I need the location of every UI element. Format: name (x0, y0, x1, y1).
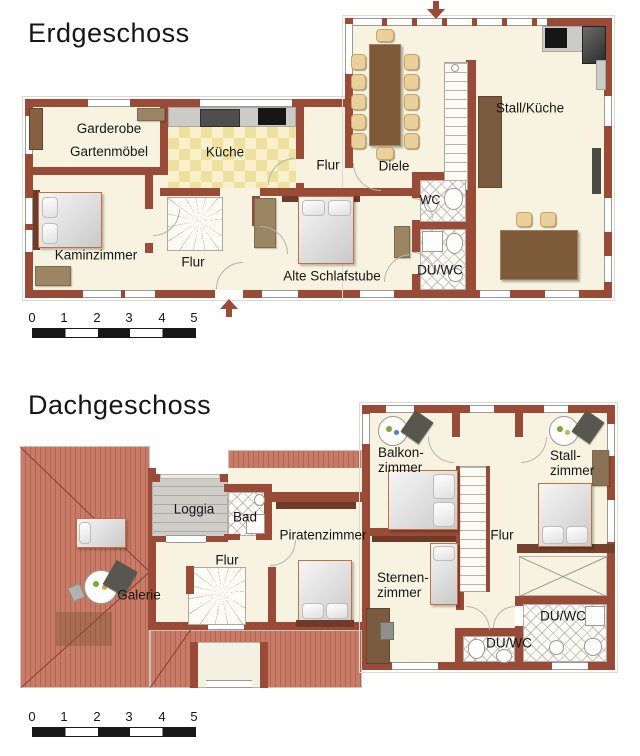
glass-post (502, 18, 507, 26)
shower (422, 231, 443, 252)
scale-tick: 0 (28, 709, 35, 724)
table-decor (394, 430, 399, 435)
table (500, 230, 578, 280)
wall-segment (145, 175, 153, 209)
wall-segment (515, 405, 523, 437)
room-label-garderobe: Garderobe Gartenmöbel (70, 117, 148, 163)
window (607, 500, 615, 542)
window (262, 290, 298, 298)
window (604, 256, 612, 282)
chair (404, 54, 419, 70)
room-label-sternenzimmer: Sternen- zimmer (377, 570, 429, 600)
table-decor (93, 581, 99, 587)
window (480, 290, 510, 298)
room-label-balkonzimmer: Balkon- zimmer (378, 445, 424, 475)
loggia-railing (160, 474, 220, 479)
wall-segment (224, 534, 240, 540)
pillow (302, 200, 325, 216)
kitchen-sink (200, 109, 240, 127)
room-label-line: zimmer (378, 460, 424, 475)
window (360, 290, 394, 298)
window (604, 198, 612, 232)
scale-bar (32, 727, 196, 737)
room-label-wc: WC (420, 193, 441, 207)
room-label-du-wc-gross: DU/WC (540, 609, 586, 624)
appliance (582, 26, 606, 64)
room-label-flur-sued: Flur (181, 255, 204, 270)
staircase-spiral (188, 567, 246, 625)
chair (404, 114, 419, 130)
kitchen-counter (596, 60, 606, 90)
window (88, 99, 130, 107)
floor-title-erdgeschoss: Erdgeschoss (28, 18, 190, 49)
wall-segment (268, 567, 276, 622)
scale-bar (32, 328, 196, 338)
bed-alte-schlafstube (298, 196, 354, 264)
chair (351, 133, 366, 149)
wall-segment (260, 642, 268, 688)
pillow (542, 526, 564, 544)
wall-segment (296, 107, 304, 159)
room-label-flur-ost: Flur (490, 528, 513, 543)
bidet (549, 640, 564, 655)
scale-tick: 0 (28, 310, 35, 325)
chair (351, 74, 366, 90)
room-label-line: Balkon- (378, 445, 424, 460)
chair (380, 622, 394, 640)
pillow (42, 197, 58, 218)
wall-segment (190, 642, 198, 688)
toilet (468, 639, 485, 659)
pillow (433, 546, 455, 561)
bed-sternenzimmer (430, 543, 458, 605)
wall-segment (272, 492, 362, 502)
room-label-line: zimmer (550, 463, 594, 478)
toilet (444, 188, 463, 210)
toilet (446, 233, 463, 254)
scale-tick: 1 (60, 310, 67, 325)
scale-tick: 2 (93, 709, 100, 724)
window (206, 680, 252, 688)
chair (351, 94, 366, 110)
window (604, 96, 612, 126)
shelf (592, 148, 601, 194)
sink (254, 494, 265, 506)
window (545, 290, 579, 298)
chair (540, 212, 556, 227)
bed-balkonzimmer (388, 470, 458, 530)
glass-post (382, 18, 387, 26)
window (125, 290, 155, 298)
chair (516, 212, 532, 227)
glass-post (442, 18, 447, 26)
table-decor (557, 426, 563, 432)
bed-footwall (296, 620, 354, 627)
chair (351, 114, 366, 130)
room-label-bad: Bad (233, 510, 257, 525)
entrance-opening (215, 290, 243, 298)
bed-galerie (76, 518, 126, 548)
wall-segment (186, 566, 194, 594)
wall-segment (33, 167, 168, 175)
under-roof-furniture (56, 612, 112, 646)
room-label-line: Stall- (550, 448, 594, 463)
window (200, 99, 292, 107)
window (386, 405, 414, 413)
toilet (584, 638, 602, 656)
cooktop (258, 108, 286, 125)
pillow (79, 522, 91, 544)
pillow (433, 502, 455, 527)
bed-stallzimmer (538, 483, 592, 547)
window (362, 414, 370, 444)
scale-tick: 4 (158, 709, 165, 724)
wall-segment (455, 628, 463, 664)
chair (351, 54, 366, 70)
pillow (328, 200, 351, 216)
chair (404, 74, 419, 90)
scale-tick: 5 (190, 310, 197, 325)
window (25, 230, 33, 252)
room-label-stall-kueche: Stall/Küche (496, 101, 564, 116)
wall-segment (452, 405, 460, 437)
floor-title-dachgeschoss: Dachgeschoss (28, 390, 211, 421)
scale-tick: 1 (60, 709, 67, 724)
table-decor (565, 430, 570, 435)
loggia-post (152, 474, 160, 482)
window (544, 405, 568, 413)
floor-plan-page: Erdgeschoss (0, 0, 640, 756)
wall-segment (264, 492, 272, 540)
glass-post (412, 18, 417, 26)
chair (404, 133, 419, 149)
pillow (566, 526, 588, 544)
room-label-piratenzimmer: Piratenzimmer (279, 528, 366, 543)
wardrobe (592, 450, 609, 486)
wall-opening (515, 606, 523, 626)
window (166, 535, 206, 543)
room-label-galerie: Galerie (117, 588, 161, 603)
bed-headwall (372, 536, 456, 542)
room-label-loggia: Loggia (174, 502, 215, 517)
loggia-post (220, 474, 228, 482)
pillow (302, 603, 324, 619)
window (470, 405, 494, 413)
room-label-line: zimmer (377, 585, 429, 600)
arrow-stem (226, 308, 232, 317)
scale-tick: 5 (190, 709, 197, 724)
table-decor (386, 426, 392, 432)
staircase-straight (444, 62, 468, 190)
arrow-head (427, 9, 445, 19)
staircase-straight (459, 466, 487, 592)
wall-segment (412, 220, 420, 252)
room-label-du-wc-klein: DU/WC (486, 636, 532, 651)
room-label-stallzimmer: Stall- zimmer (550, 448, 594, 478)
shower (585, 606, 605, 626)
pillow (326, 603, 348, 619)
bench (29, 108, 43, 150)
wall-segment (160, 188, 220, 196)
wall-segment (145, 243, 153, 253)
scale-tick: 3 (125, 310, 132, 325)
dining-table (369, 44, 401, 146)
window (25, 198, 33, 224)
dresser (35, 266, 71, 286)
room-label-line: Garderobe (70, 117, 148, 140)
stair-pole (451, 64, 459, 72)
room-label-line: Sternen- (377, 570, 429, 585)
chair (376, 29, 394, 42)
sink (496, 649, 512, 663)
scale-tick: 2 (93, 310, 100, 325)
wall-segment (224, 484, 272, 492)
room-label-kaminzimmer: Kaminzimmer (55, 248, 138, 263)
scale-tick: 4 (158, 310, 165, 325)
bed-kaminzimmer (38, 192, 102, 248)
room-label-flur-mitte: Flur (316, 158, 339, 173)
room-label-diele: Diele (379, 159, 410, 174)
bed-piratenzimmer (298, 560, 352, 622)
pillow (42, 223, 58, 244)
glass-post (532, 18, 537, 26)
room-label-du-wc: DU/WC (417, 263, 463, 278)
wall-segment (420, 222, 468, 229)
room-label-line: Gartenmöbel (70, 140, 148, 163)
room-label-flur-west: Flur (215, 553, 238, 568)
chair (404, 94, 419, 110)
wall-segment (260, 188, 420, 196)
bed-headwall (276, 502, 356, 509)
cooktop (545, 28, 567, 48)
pillow (433, 474, 455, 499)
room-label-kueche: Küche (206, 145, 244, 160)
window (83, 290, 121, 298)
wall-segment (515, 596, 615, 604)
window (552, 662, 588, 670)
wardrobe (394, 226, 410, 258)
room-label-alte-schlafstube: Alte Schlafstube (283, 269, 381, 284)
scale-tick: 3 (125, 709, 132, 724)
glass-post (472, 18, 477, 26)
window (392, 662, 438, 670)
